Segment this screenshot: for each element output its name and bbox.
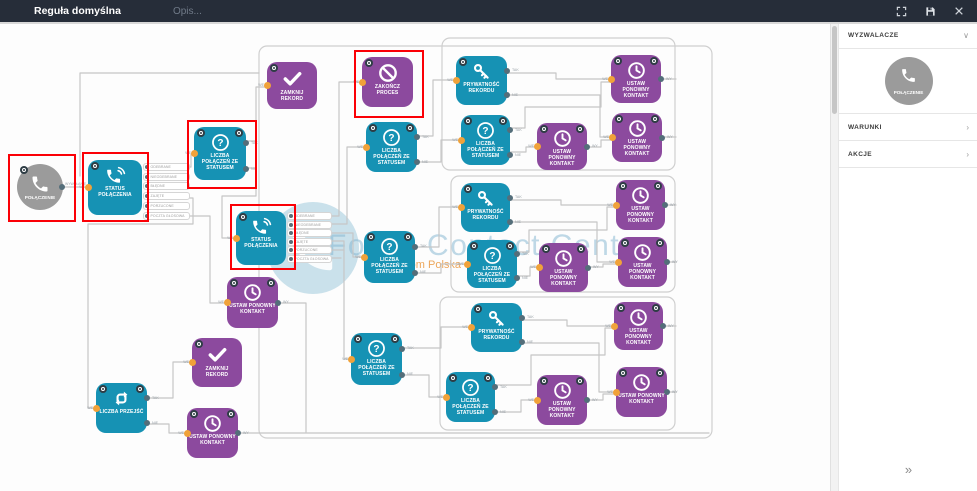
port-label: TAK (152, 396, 159, 400)
description-input[interactable] (171, 5, 395, 18)
trigger-label: POŁĄCZENIE (894, 90, 924, 95)
status-output-port[interactable]: BŁĘDNE (287, 229, 332, 237)
node-badge-icon[interactable] (367, 233, 375, 241)
port-label: TAK (515, 128, 522, 132)
node-p1-key[interactable]: PRYWATNOŚĆ REKORDU (456, 56, 507, 105)
node-p3-key[interactable]: PRYWATNOŚĆ REKORDU (471, 303, 522, 352)
port-label: TAK (515, 195, 522, 199)
node-badge-icon[interactable] (354, 335, 362, 343)
node-badge-icon[interactable] (20, 166, 28, 174)
output-port-wy[interactable] (662, 202, 668, 208)
node-badge-icon[interactable] (542, 245, 550, 253)
status-output-port[interactable]: ZAJĘTE (287, 238, 332, 246)
node-p2-key[interactable]: PRYWATNOŚĆ REKORDU (461, 183, 510, 232)
output-port-tak[interactable] (412, 244, 418, 250)
status-port-label: BŁĘDNE (151, 184, 166, 188)
node-badge-icon[interactable] (654, 182, 662, 190)
node-l6-question[interactable]: ?LICZBA POŁĄCZEŃ ZE STATUSEM (467, 240, 517, 288)
node-label: LICZBA POŁĄCZEŃ ZE STATUSEM (364, 258, 415, 276)
node-label: USTAW PONOWNY KONTAKT (537, 150, 587, 168)
clock-icon (628, 307, 649, 328)
port-label: WE (254, 83, 264, 87)
input-port[interactable] (608, 76, 615, 83)
input-port[interactable] (534, 143, 541, 150)
node-label: LICZBA POŁĄCZEŃ ZE STATUSEM (194, 154, 246, 172)
status-output-port[interactable]: NIEODEBRANE (143, 173, 190, 181)
clock-icon (202, 413, 223, 434)
node-badge-icon[interactable] (621, 239, 629, 247)
input-port[interactable] (464, 261, 471, 268)
node-c3-clock[interactable]: USTAW PONOWNY KONTAKT (537, 375, 587, 425)
node-label: ZAMKNIJ REKORD (267, 91, 317, 103)
port-label: WE (174, 431, 184, 435)
node-badge-icon[interactable] (615, 115, 623, 123)
node-z1-check[interactable]: ZAMKNIJ REKORD (267, 62, 317, 109)
output-port-tak[interactable] (399, 346, 405, 352)
port-label: WY (592, 144, 598, 148)
port-label: NIE (407, 372, 413, 376)
node-label: USTAW PONOWNY KONTAKT (187, 435, 238, 447)
node-zp-stop[interactable]: ZAKOŃCZ PROCES (362, 57, 413, 107)
node-badge-icon[interactable] (197, 129, 205, 137)
node-label: USTAW PONOWNY KONTAKT (618, 264, 667, 282)
status-output-port[interactable]: NIEODEBRANE (287, 221, 332, 229)
node-label: LICZBA PRZEJŚĆ (98, 410, 146, 416)
node-badge-icon[interactable] (470, 242, 478, 250)
input-port[interactable] (615, 259, 622, 266)
node-l2-question[interactable]: ?LICZBA POŁĄCZEŃ ZE STATUSEM (366, 122, 417, 172)
node-badge-icon[interactable] (230, 279, 238, 287)
node-label: LICZBA POŁĄCZEŃ ZE STATUSEM (446, 399, 495, 417)
node-badge-icon[interactable] (227, 410, 235, 418)
node-badge-icon[interactable] (369, 124, 377, 132)
node-badge-icon[interactable] (540, 377, 548, 385)
node-badge-icon[interactable] (576, 125, 584, 133)
collapse-panel-button[interactable]: » (839, 462, 977, 477)
node-label: PRYWATNOŚĆ REKORDU (456, 83, 507, 95)
node-badge-icon[interactable] (651, 115, 659, 123)
key-icon (475, 188, 496, 209)
flow-edge (279, 303, 306, 432)
node-l7-question[interactable]: ?LICZBA POŁĄCZEŃ ZE STATUSEM (446, 372, 495, 422)
flow-edge (402, 327, 470, 348)
question-icon: ? (460, 377, 481, 398)
node-badge-icon[interactable] (656, 239, 664, 247)
node-badge-icon[interactable] (577, 245, 585, 253)
node-badge-icon[interactable] (406, 124, 414, 132)
node-badge-icon[interactable] (404, 233, 412, 241)
input-port[interactable] (609, 134, 616, 141)
status-port-label: POCZTA GŁOSOWA (151, 214, 185, 218)
question-icon: ? (210, 132, 231, 153)
node-label: PRYWATNOŚĆ REKORDU (461, 210, 510, 222)
node-badge-icon[interactable] (464, 117, 472, 125)
clock-icon (632, 242, 653, 263)
status-port-label: POCZTA GŁOSOWA (295, 257, 329, 261)
title-bar: Reguła domyślna (0, 0, 977, 24)
node-label: USTAW PONOWNY KONTAKT (539, 270, 588, 288)
port-label: WY (593, 265, 599, 269)
node-badge-icon[interactable] (270, 64, 278, 72)
output-port-tak[interactable] (507, 195, 513, 201)
input-port[interactable] (93, 405, 100, 412)
node-badge-icon[interactable] (506, 242, 514, 250)
node-label: USTAW PONOWNY KONTAKT (616, 207, 665, 225)
port-label: WE (448, 138, 458, 142)
node-badge-icon[interactable] (576, 377, 584, 385)
chevron-right-icon: › (966, 123, 969, 132)
clock-icon (630, 185, 651, 206)
clock-icon (552, 128, 573, 149)
node-badge-icon[interactable] (235, 129, 243, 137)
input-port[interactable] (363, 144, 370, 151)
input-port[interactable] (534, 397, 541, 404)
port-label: TAK (527, 315, 534, 319)
node-r6-clock[interactable]: USTAW PONOWNY KONTAKT (616, 367, 667, 417)
section-akcje[interactable]: AKCJE › (839, 141, 977, 168)
node-badge-icon[interactable] (449, 374, 457, 382)
flow-edge (417, 140, 460, 162)
node-label: USTAW PONOWNY KONTAKT (227, 304, 278, 316)
status-output-port[interactable]: PORZUCONE (287, 246, 332, 254)
port-label: WE (181, 151, 191, 155)
input-port[interactable] (184, 430, 191, 437)
port-label: NIE (512, 93, 518, 97)
port-label: TAK (500, 385, 507, 389)
clock-icon (552, 380, 573, 401)
input-port[interactable] (613, 202, 620, 209)
fullscreen-icon[interactable] (895, 5, 907, 17)
node-badge-icon[interactable] (484, 374, 492, 382)
status-output-port[interactable]: ZAJĘTE (143, 192, 190, 200)
port-label: WE (603, 203, 613, 207)
port-label: WE (83, 406, 93, 410)
node-badge-icon[interactable] (91, 162, 99, 170)
node-c1-clock[interactable]: USTAW PONOWNY KONTAKT (537, 123, 587, 170)
node-badge-icon[interactable] (190, 410, 198, 418)
close-icon[interactable] (953, 5, 965, 17)
node-badge-icon[interactable] (99, 385, 107, 393)
port-label: TAK (522, 252, 529, 256)
node-badge-icon[interactable] (474, 305, 482, 313)
port-label: WE (214, 300, 224, 304)
node-r4-clock[interactable]: USTAW PONOWNY KONTAKT (618, 237, 667, 287)
svg-text:?: ? (386, 242, 392, 253)
node-badge-icon[interactable] (459, 58, 467, 66)
section-wyzwalacze[interactable]: WYZWALACZE ∨ (839, 22, 977, 49)
output-port-wy[interactable] (584, 144, 590, 150)
status-output-port[interactable]: ODEBRANE (143, 163, 190, 171)
input-port[interactable] (468, 324, 475, 331)
scrollbar-thumb[interactable] (832, 26, 837, 114)
port-label: WE (598, 77, 608, 81)
node-badge-icon[interactable] (650, 57, 658, 65)
check-icon (281, 67, 304, 90)
svg-text:?: ? (388, 133, 394, 144)
question-icon: ? (482, 245, 503, 266)
output-port-wy[interactable] (275, 300, 281, 306)
flow-edge (510, 200, 615, 205)
clock-icon (242, 282, 263, 303)
chevron-down-icon: ∨ (963, 31, 969, 40)
trigger-icon (30, 174, 50, 194)
port-label: TAK (422, 135, 429, 139)
input-port[interactable] (233, 235, 240, 242)
port-label: WE (603, 390, 613, 394)
status-port-label: PORZUCONE (295, 248, 318, 252)
node-s1-status[interactable]: STATUS POŁĄCZENIA (88, 160, 142, 215)
output-port-tak[interactable] (507, 127, 513, 133)
svg-text:?: ? (217, 138, 223, 149)
node-r5-clock[interactable]: USTAW PONOWNY KONTAKT (614, 302, 663, 350)
flow-edge (188, 216, 226, 303)
input-port[interactable] (359, 79, 366, 86)
clock-icon (627, 118, 648, 139)
clock-icon (553, 248, 574, 269)
output-port-wy[interactable] (664, 259, 670, 265)
node-badge-icon[interactable] (652, 304, 660, 312)
port-label: WE (433, 395, 443, 399)
svg-text:?: ? (373, 344, 379, 355)
port-label: WY (243, 431, 249, 435)
status-port-label: PORZUCONE (151, 204, 174, 208)
node-r1-clock[interactable]: USTAW PONOWNY KONTAKT (611, 55, 661, 103)
port-label: NIE (420, 270, 426, 274)
port-label: TAK (251, 141, 258, 145)
node-label: USTAW PONOWNY KONTAKT (614, 329, 663, 347)
input-port[interactable] (264, 82, 271, 89)
port-label: WE (524, 144, 534, 148)
port-label: NIE (152, 421, 158, 425)
output-port-nie[interactable] (492, 409, 498, 415)
output-port-tak[interactable] (504, 68, 510, 74)
node-lp-loop[interactable]: LICZBA PRZEJŚĆ (96, 383, 147, 433)
port-label: NIE (500, 410, 506, 414)
flow-edge (88, 198, 193, 408)
port-label: WE (601, 324, 611, 328)
port-label: NIE (251, 167, 257, 171)
input-port[interactable] (189, 359, 196, 366)
input-port[interactable] (458, 137, 465, 144)
node-label: USTAW PONOWNY KONTAKT (612, 140, 662, 158)
flow-edge (245, 87, 266, 141)
node-label: STATUS POŁĄCZENIA (88, 187, 142, 199)
node-badge-icon[interactable] (614, 57, 622, 65)
output-port-nie[interactable] (414, 159, 420, 165)
node-badge-icon[interactable] (195, 340, 203, 348)
port-label: NIE (515, 220, 521, 224)
node-badge-icon[interactable] (391, 335, 399, 343)
status-output-port[interactable]: POCZTA GŁOSOWA (287, 255, 332, 263)
stop-icon (377, 62, 399, 84)
node-z2-check[interactable]: ZAMKNIJ REKORD (192, 338, 242, 387)
node-l1-question[interactable]: ?LICZBA POŁĄCZEŃ ZE STATUSEM (194, 127, 246, 180)
output-port-tak[interactable] (243, 140, 249, 146)
port-label: WE (179, 360, 189, 364)
node-s2-status[interactable]: STATUS POŁĄCZENIA (236, 211, 286, 265)
port-label: WY (666, 77, 672, 81)
output-port[interactable] (59, 184, 65, 190)
input-port[interactable] (458, 204, 465, 211)
node-r2-clock[interactable]: USTAW PONOWNY KONTAKT (612, 113, 662, 162)
status-output-port[interactable]: PORZUCONE (143, 202, 190, 210)
status-port-label: ODEBRANE (151, 165, 171, 169)
node-u2-clock[interactable]: USTAW PONOWNY KONTAKT (187, 408, 238, 458)
output-port-nie[interactable] (399, 372, 405, 378)
node-l5-question[interactable]: ?LICZBA POŁĄCZEŃ ZE STATUSEM (461, 115, 510, 165)
output-port-tak[interactable] (414, 134, 420, 140)
node-badge-icon[interactable] (540, 125, 548, 133)
node-badge-icon[interactable] (136, 385, 144, 393)
node-r3-clock[interactable]: USTAW PONOWNY KONTAKT (616, 180, 665, 230)
port-label: WY (670, 203, 676, 207)
output-port-wy[interactable] (658, 76, 664, 82)
input-port[interactable] (224, 299, 231, 306)
node-label: ZAKOŃCZ PROCES (362, 85, 413, 97)
port-label: NIE (522, 276, 528, 280)
input-port[interactable] (443, 394, 450, 401)
output-port-nie[interactable] (507, 152, 513, 158)
node-badge-icon[interactable] (656, 369, 664, 377)
status-port-label: NIEODEBRANE (295, 223, 322, 227)
port-label: NIE (527, 340, 533, 344)
loop-icon (111, 388, 132, 409)
output-port-nie[interactable] (412, 270, 418, 276)
rule-name[interactable]: Reguła domyślna (34, 5, 121, 17)
node-label: POŁĄCZENIE (23, 195, 58, 200)
port-label: NIE (515, 153, 521, 157)
svg-text:?: ? (489, 251, 495, 262)
input-port[interactable] (191, 150, 198, 157)
node-label: LICZBA POŁĄCZEŃ ZE STATUSEM (351, 360, 402, 378)
node-badge-icon[interactable] (499, 117, 507, 125)
status-icon (105, 165, 126, 186)
port-label: WY (667, 135, 673, 139)
output-port-wy[interactable] (664, 389, 670, 395)
flow-edge (402, 375, 445, 397)
question-icon: ? (366, 338, 387, 359)
port-label: WE (454, 262, 464, 266)
port-label: WE (458, 325, 468, 329)
port-label: WE (351, 255, 361, 259)
clock-icon (626, 60, 647, 81)
port-label: WY (592, 398, 598, 402)
node-label: PRYWATNOŚĆ REKORDU (471, 330, 522, 342)
node-badge-icon[interactable] (619, 182, 627, 190)
port-label: WE (223, 236, 233, 240)
input-port[interactable] (361, 254, 368, 261)
node-l3-question[interactable]: ?LICZBA POŁĄCZEŃ ZE STATUSEM (364, 231, 415, 283)
port-label: WE (338, 357, 348, 361)
svg-text:?: ? (467, 383, 473, 394)
flow-edge (147, 362, 191, 398)
node-badge-icon[interactable] (267, 279, 275, 287)
node-c2-clock[interactable]: USTAW PONOWNY KONTAKT (539, 243, 588, 292)
node-badge-icon[interactable] (365, 59, 373, 67)
status-port-label: ZAJĘTE (151, 194, 165, 198)
port-label: WY (283, 300, 289, 304)
question-icon: ? (379, 236, 400, 257)
port-label: WE (349, 80, 359, 84)
svg-text:?: ? (482, 126, 488, 137)
status-output-port[interactable]: BŁĘDNE (143, 182, 190, 190)
output-port-nie[interactable] (144, 420, 150, 426)
question-icon: ? (475, 120, 496, 141)
trigger-polaczenie-item[interactable]: POŁĄCZENIE (885, 57, 933, 105)
node-badge-icon[interactable] (617, 304, 625, 312)
status-port-label: NIEODEBRANE (151, 175, 178, 179)
node-label: LICZBA POŁĄCZEŃ ZE STATUSEM (467, 267, 517, 285)
node-badge-icon[interactable] (619, 369, 627, 377)
node-l4-question[interactable]: ?LICZBA POŁĄCZEŃ ZE STATUSEM (351, 333, 402, 385)
input-port[interactable] (85, 184, 92, 191)
node-badge-icon[interactable] (239, 213, 247, 221)
output-port-wy[interactable] (235, 430, 241, 436)
flow-edge (510, 82, 610, 128)
palette-sidebar: WYZWALACZE ∨ POŁĄCZENIE WARUNKI › AKCJE … (838, 22, 977, 491)
port-label: TAK (407, 346, 414, 350)
output-port-wy[interactable] (585, 265, 591, 271)
output-port-wy[interactable] (660, 323, 666, 329)
node-label: ZAMKNIJ REKORD (192, 367, 242, 379)
phone-icon (900, 67, 917, 89)
port-label: WY (668, 324, 674, 328)
chevron-right-icon: › (966, 150, 969, 159)
node-label: STATUS POŁĄCZENIA (236, 238, 286, 250)
output-port-tak[interactable] (144, 395, 150, 401)
input-port[interactable] (613, 389, 620, 396)
output-port-tak[interactable] (519, 315, 525, 321)
port-label: WE (443, 78, 453, 82)
key-icon (471, 61, 492, 82)
node-t1-trigger[interactable]: POŁĄCZENIE (17, 164, 63, 210)
window-buttons (895, 5, 965, 17)
input-port[interactable] (536, 264, 543, 271)
port-label: TAK (420, 244, 427, 248)
input-port[interactable] (453, 77, 460, 84)
port-label: TAK (512, 68, 519, 72)
clock-icon (631, 372, 652, 393)
flow-edge (331, 82, 361, 216)
question-icon: ? (381, 127, 402, 148)
status-icon (251, 216, 272, 237)
port-label: WE (524, 398, 534, 402)
check-icon (206, 343, 229, 366)
status-output-port[interactable]: ODEBRANE (287, 212, 332, 220)
node-badge-icon[interactable] (464, 185, 472, 193)
node-label: LICZBA POŁĄCZEŃ ZE STATUSEM (461, 142, 510, 160)
output-port-wy[interactable] (659, 135, 665, 141)
input-port[interactable] (348, 356, 355, 363)
port-label: NIE (422, 160, 428, 164)
save-icon[interactable] (924, 5, 936, 17)
input-port[interactable] (611, 323, 618, 330)
port-label: WY (672, 390, 678, 394)
flow-edge (522, 320, 613, 326)
node-u1-clock[interactable]: USTAW PONOWNY KONTAKT (227, 277, 278, 328)
output-port-tak[interactable] (492, 384, 498, 390)
flow-edge (417, 80, 455, 136)
flow-edge (507, 73, 610, 79)
status-port-label: ODEBRANE (295, 214, 315, 218)
key-icon (486, 308, 507, 329)
port-label: WE (448, 205, 458, 209)
output-port-wy[interactable] (584, 397, 590, 403)
status-output-port[interactable]: POCZTA GŁOSOWA (143, 212, 190, 220)
port-label: WY (672, 260, 678, 264)
port-label: WE (599, 135, 609, 139)
section-warunki[interactable]: WARUNKI › (839, 114, 977, 141)
